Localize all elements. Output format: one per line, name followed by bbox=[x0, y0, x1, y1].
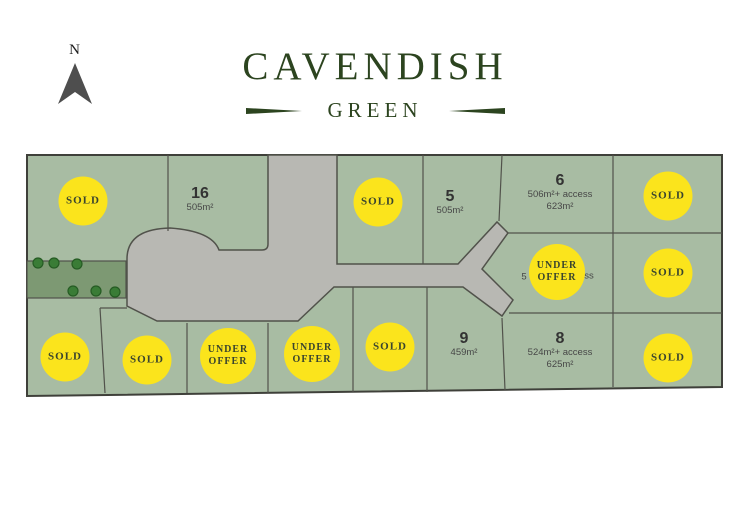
site-plan bbox=[0, 0, 750, 530]
tree-icon bbox=[91, 286, 101, 296]
status-badge-sold: SOLD bbox=[41, 333, 90, 382]
tree-icon bbox=[68, 286, 78, 296]
status-badge-sold: SOLD bbox=[354, 178, 403, 227]
status-badge-under-offer: UNDER OFFER bbox=[529, 244, 585, 300]
status-badge-under-offer: UNDER OFFER bbox=[284, 326, 340, 382]
status-badge-sold: SOLD bbox=[644, 172, 693, 221]
tree-icon bbox=[72, 259, 82, 269]
status-badge-sold: SOLD bbox=[59, 177, 108, 226]
estate-plan-page: N CAVENDISH GREEN bbox=[0, 0, 750, 530]
tree-icon bbox=[33, 258, 43, 268]
status-badge-sold: SOLD bbox=[123, 336, 172, 385]
status-badge-sold: SOLD bbox=[644, 249, 693, 298]
status-badge-sold: SOLD bbox=[644, 334, 693, 383]
tree-icon bbox=[110, 287, 120, 297]
status-badge-under-offer: UNDER OFFER bbox=[200, 328, 256, 384]
status-badge-sold: SOLD bbox=[366, 323, 415, 372]
tree-icon bbox=[49, 258, 59, 268]
